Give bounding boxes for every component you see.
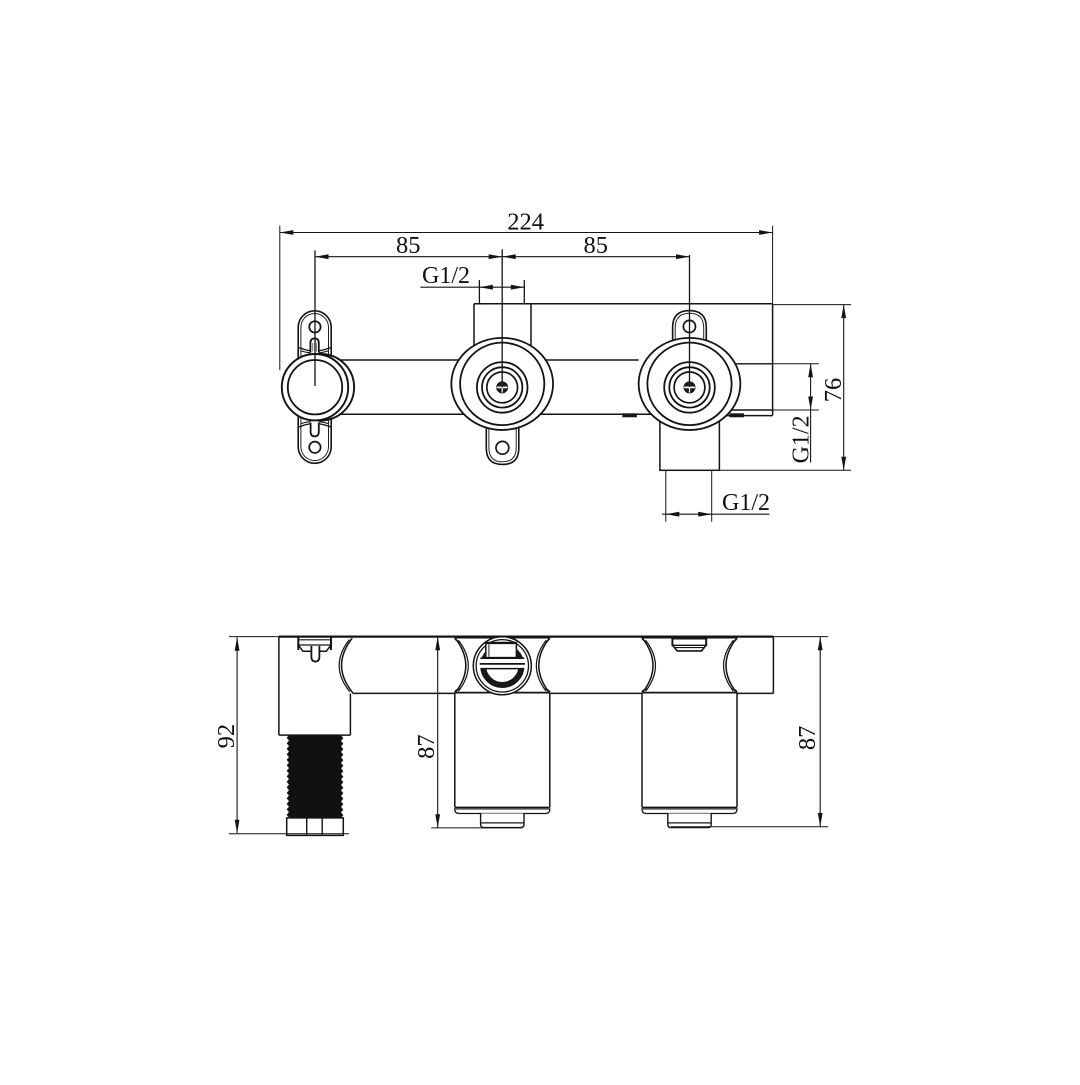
svg-text:85: 85	[584, 232, 609, 259]
svg-text:87: 87	[413, 734, 440, 759]
svg-text:G1/2: G1/2	[722, 490, 770, 516]
svg-text:G1/2: G1/2	[422, 263, 470, 289]
svg-text:G1/2: G1/2	[789, 415, 815, 463]
svg-text:76: 76	[820, 378, 847, 403]
svg-text:87: 87	[794, 726, 821, 751]
svg-text:92: 92	[213, 724, 240, 749]
svg-text:85: 85	[396, 232, 421, 259]
svg-text:224: 224	[507, 208, 544, 235]
